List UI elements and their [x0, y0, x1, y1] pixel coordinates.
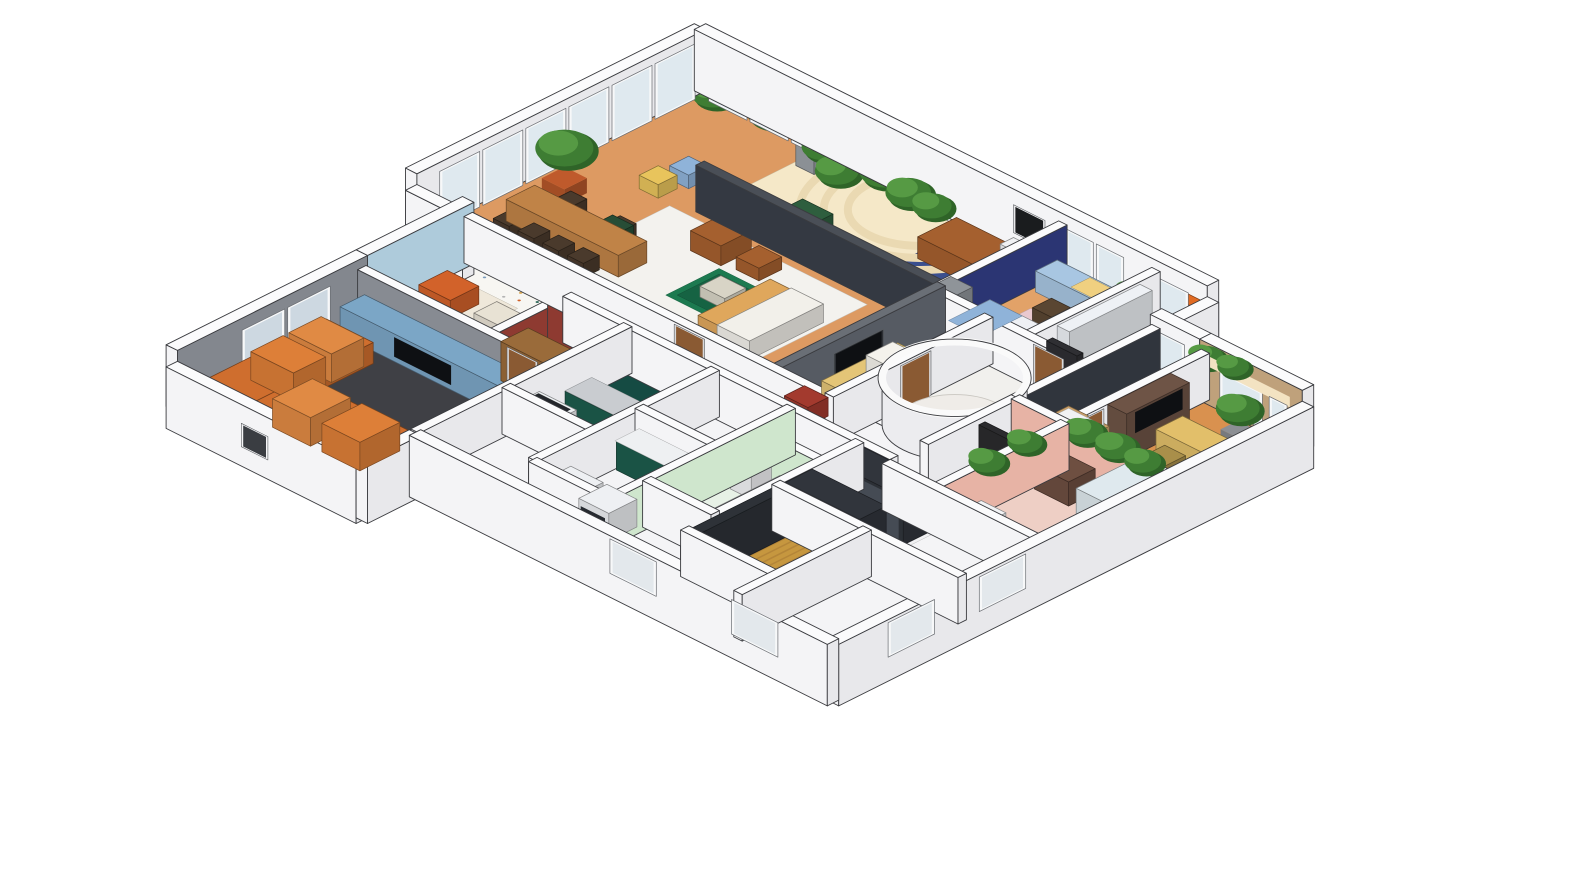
floorplan-figure: [0, 0, 1582, 890]
floorplan-canvas: [0, 0, 1582, 890]
